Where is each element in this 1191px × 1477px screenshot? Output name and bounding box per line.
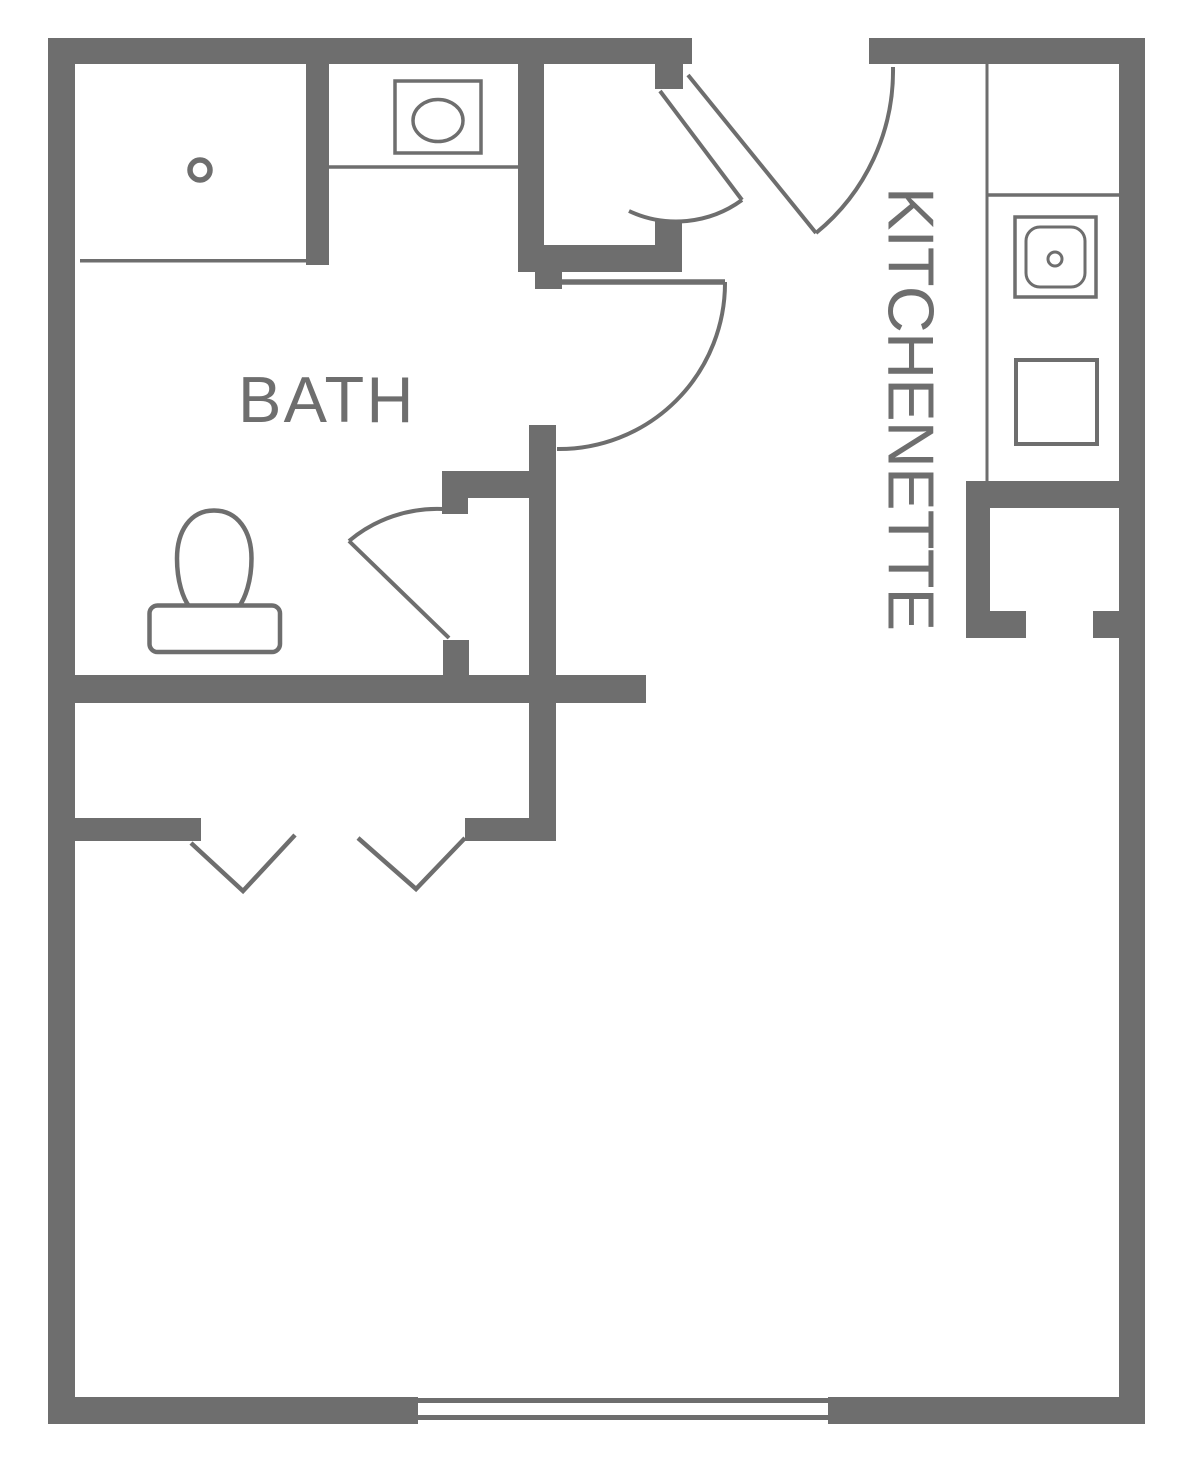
svg-text:KITCHENETTE: KITCHENETTE xyxy=(875,187,948,630)
svg-text:BATH: BATH xyxy=(238,363,416,436)
